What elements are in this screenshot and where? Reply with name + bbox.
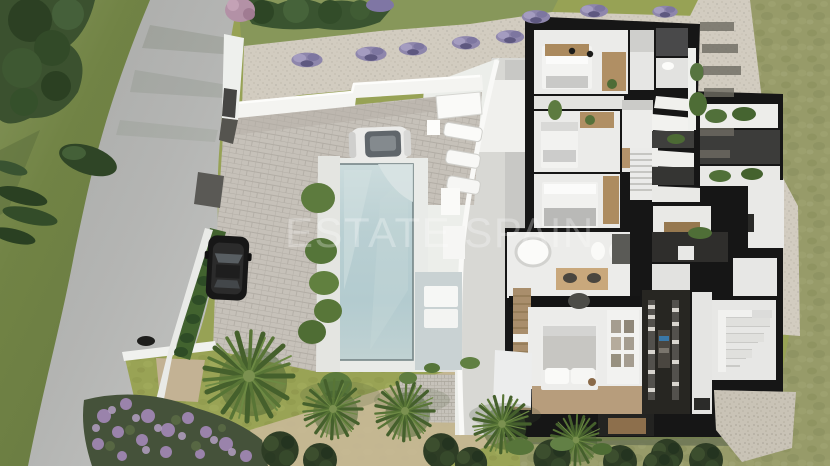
svg-text:ESTATE SPAIN: ESTATE SPAIN [285, 209, 595, 256]
